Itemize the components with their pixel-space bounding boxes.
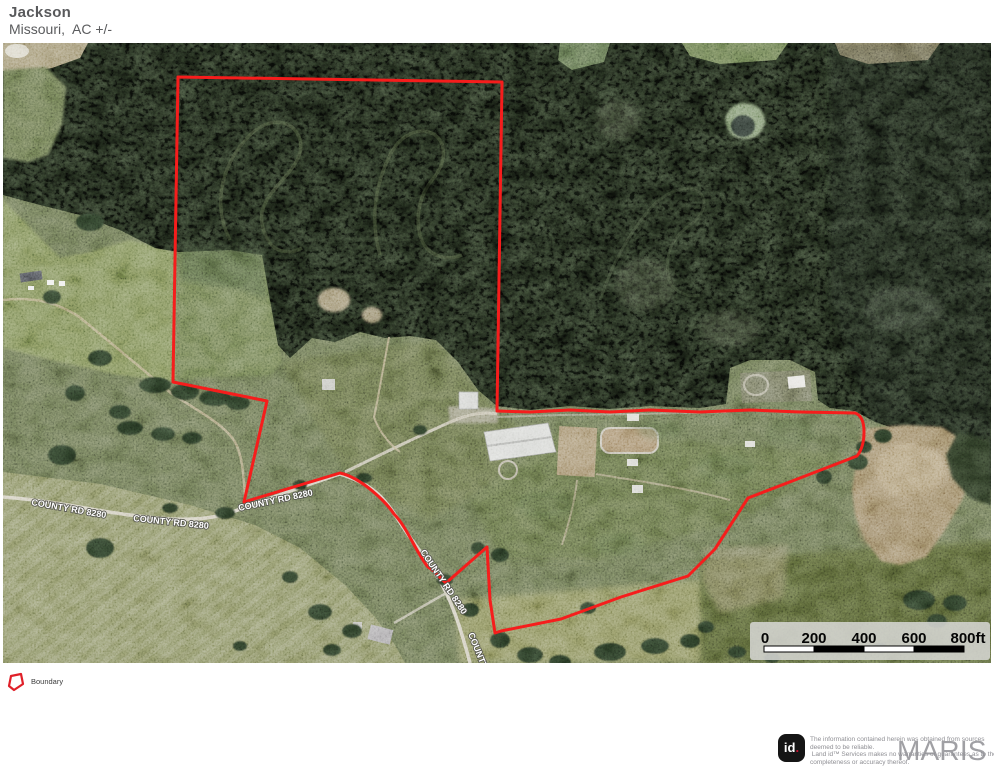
svg-text:800ft: 800ft: [950, 630, 985, 647]
svg-text:0: 0: [761, 630, 769, 647]
svg-text:200: 200: [801, 630, 826, 647]
svg-text:600: 600: [901, 630, 926, 647]
svg-text:400: 400: [851, 630, 876, 647]
